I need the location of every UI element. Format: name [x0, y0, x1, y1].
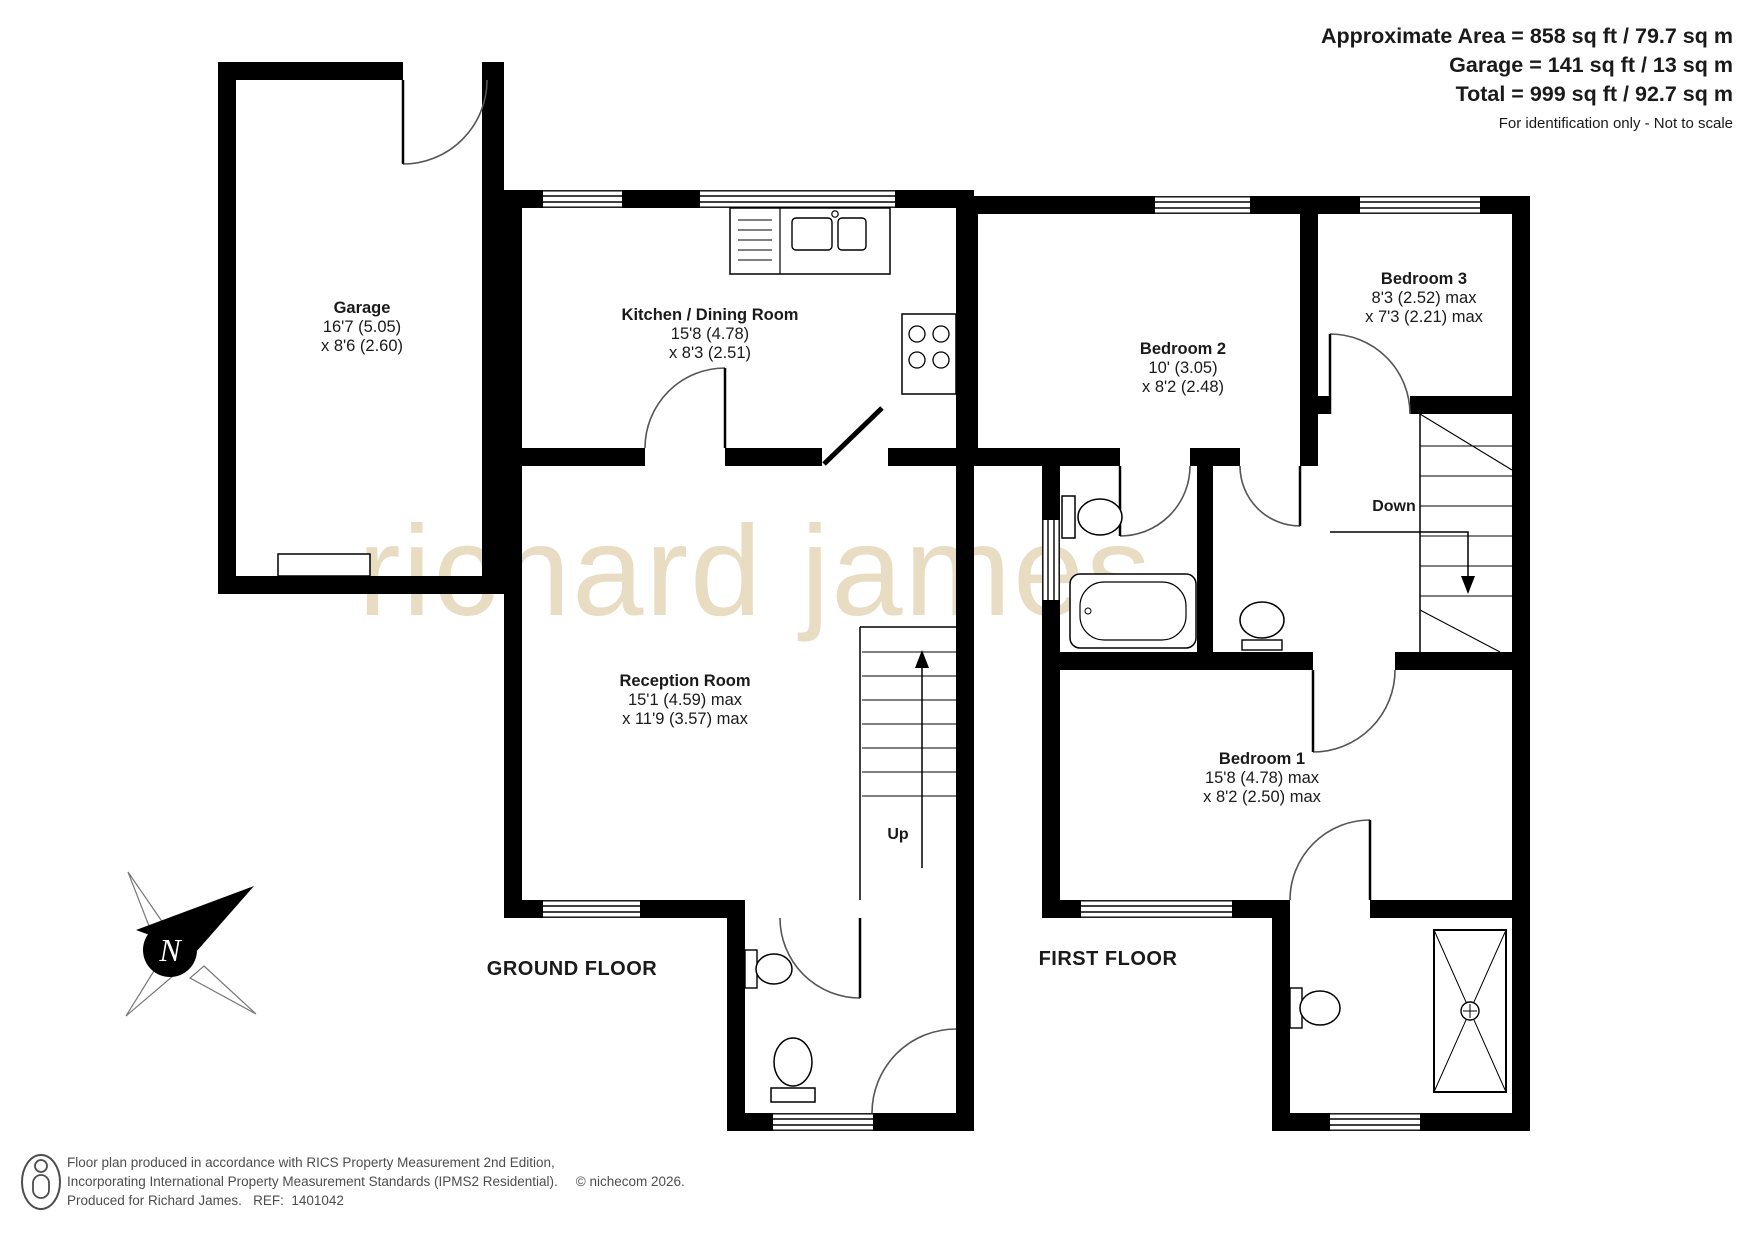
basin-icon: [1290, 988, 1340, 1028]
floorplan-drawing: N: [0, 0, 1755, 1241]
basin-icon: [745, 950, 792, 988]
bedroom3-door-icon: [1330, 334, 1410, 414]
hob-icon: [902, 314, 956, 394]
window-icon: [1360, 196, 1480, 214]
compass-north-label: N: [158, 932, 182, 968]
window-icon: [543, 190, 622, 208]
window-icon: [1081, 900, 1232, 918]
person-icon: [22, 1155, 60, 1209]
sink-icon: [730, 208, 890, 274]
reception-door-icon: [824, 408, 882, 464]
window-icon: [1155, 196, 1250, 214]
wc-door-icon: [780, 918, 860, 998]
toilet-icon: [771, 1038, 815, 1102]
bedroom1-door-icon: [1313, 670, 1395, 752]
floorplan-page: richard james: [0, 0, 1755, 1241]
shower-icon: [1434, 930, 1506, 1092]
entrance-door-icon: [872, 1029, 956, 1113]
first-floor-plan: [960, 196, 1530, 1131]
window-icon: [773, 1113, 873, 1131]
window-icon: [1330, 1113, 1420, 1131]
kitchen-door-icon: [645, 368, 725, 448]
stairs-down-icon: [1330, 414, 1512, 652]
bathroom-door-icon: [1120, 466, 1190, 536]
compass-icon: N: [126, 872, 256, 1016]
shower-room-door-icon: [1290, 820, 1370, 900]
internal-walls: [522, 448, 956, 466]
bedroom2-door-icon: [1240, 466, 1300, 526]
house-walls: [504, 190, 974, 1131]
window-icon: [700, 190, 895, 208]
toilet-icon: [1062, 496, 1122, 538]
ground-floor-plan: [218, 62, 974, 1131]
garage-walls: [218, 62, 504, 594]
window-icon: [1042, 520, 1060, 600]
bath-icon: [1070, 574, 1196, 648]
garage-door-icon: [403, 80, 487, 164]
window-icon: [543, 900, 640, 918]
garage-step: [278, 554, 370, 576]
stairs-up-icon: [860, 627, 956, 900]
basin-icon: [1240, 602, 1284, 650]
